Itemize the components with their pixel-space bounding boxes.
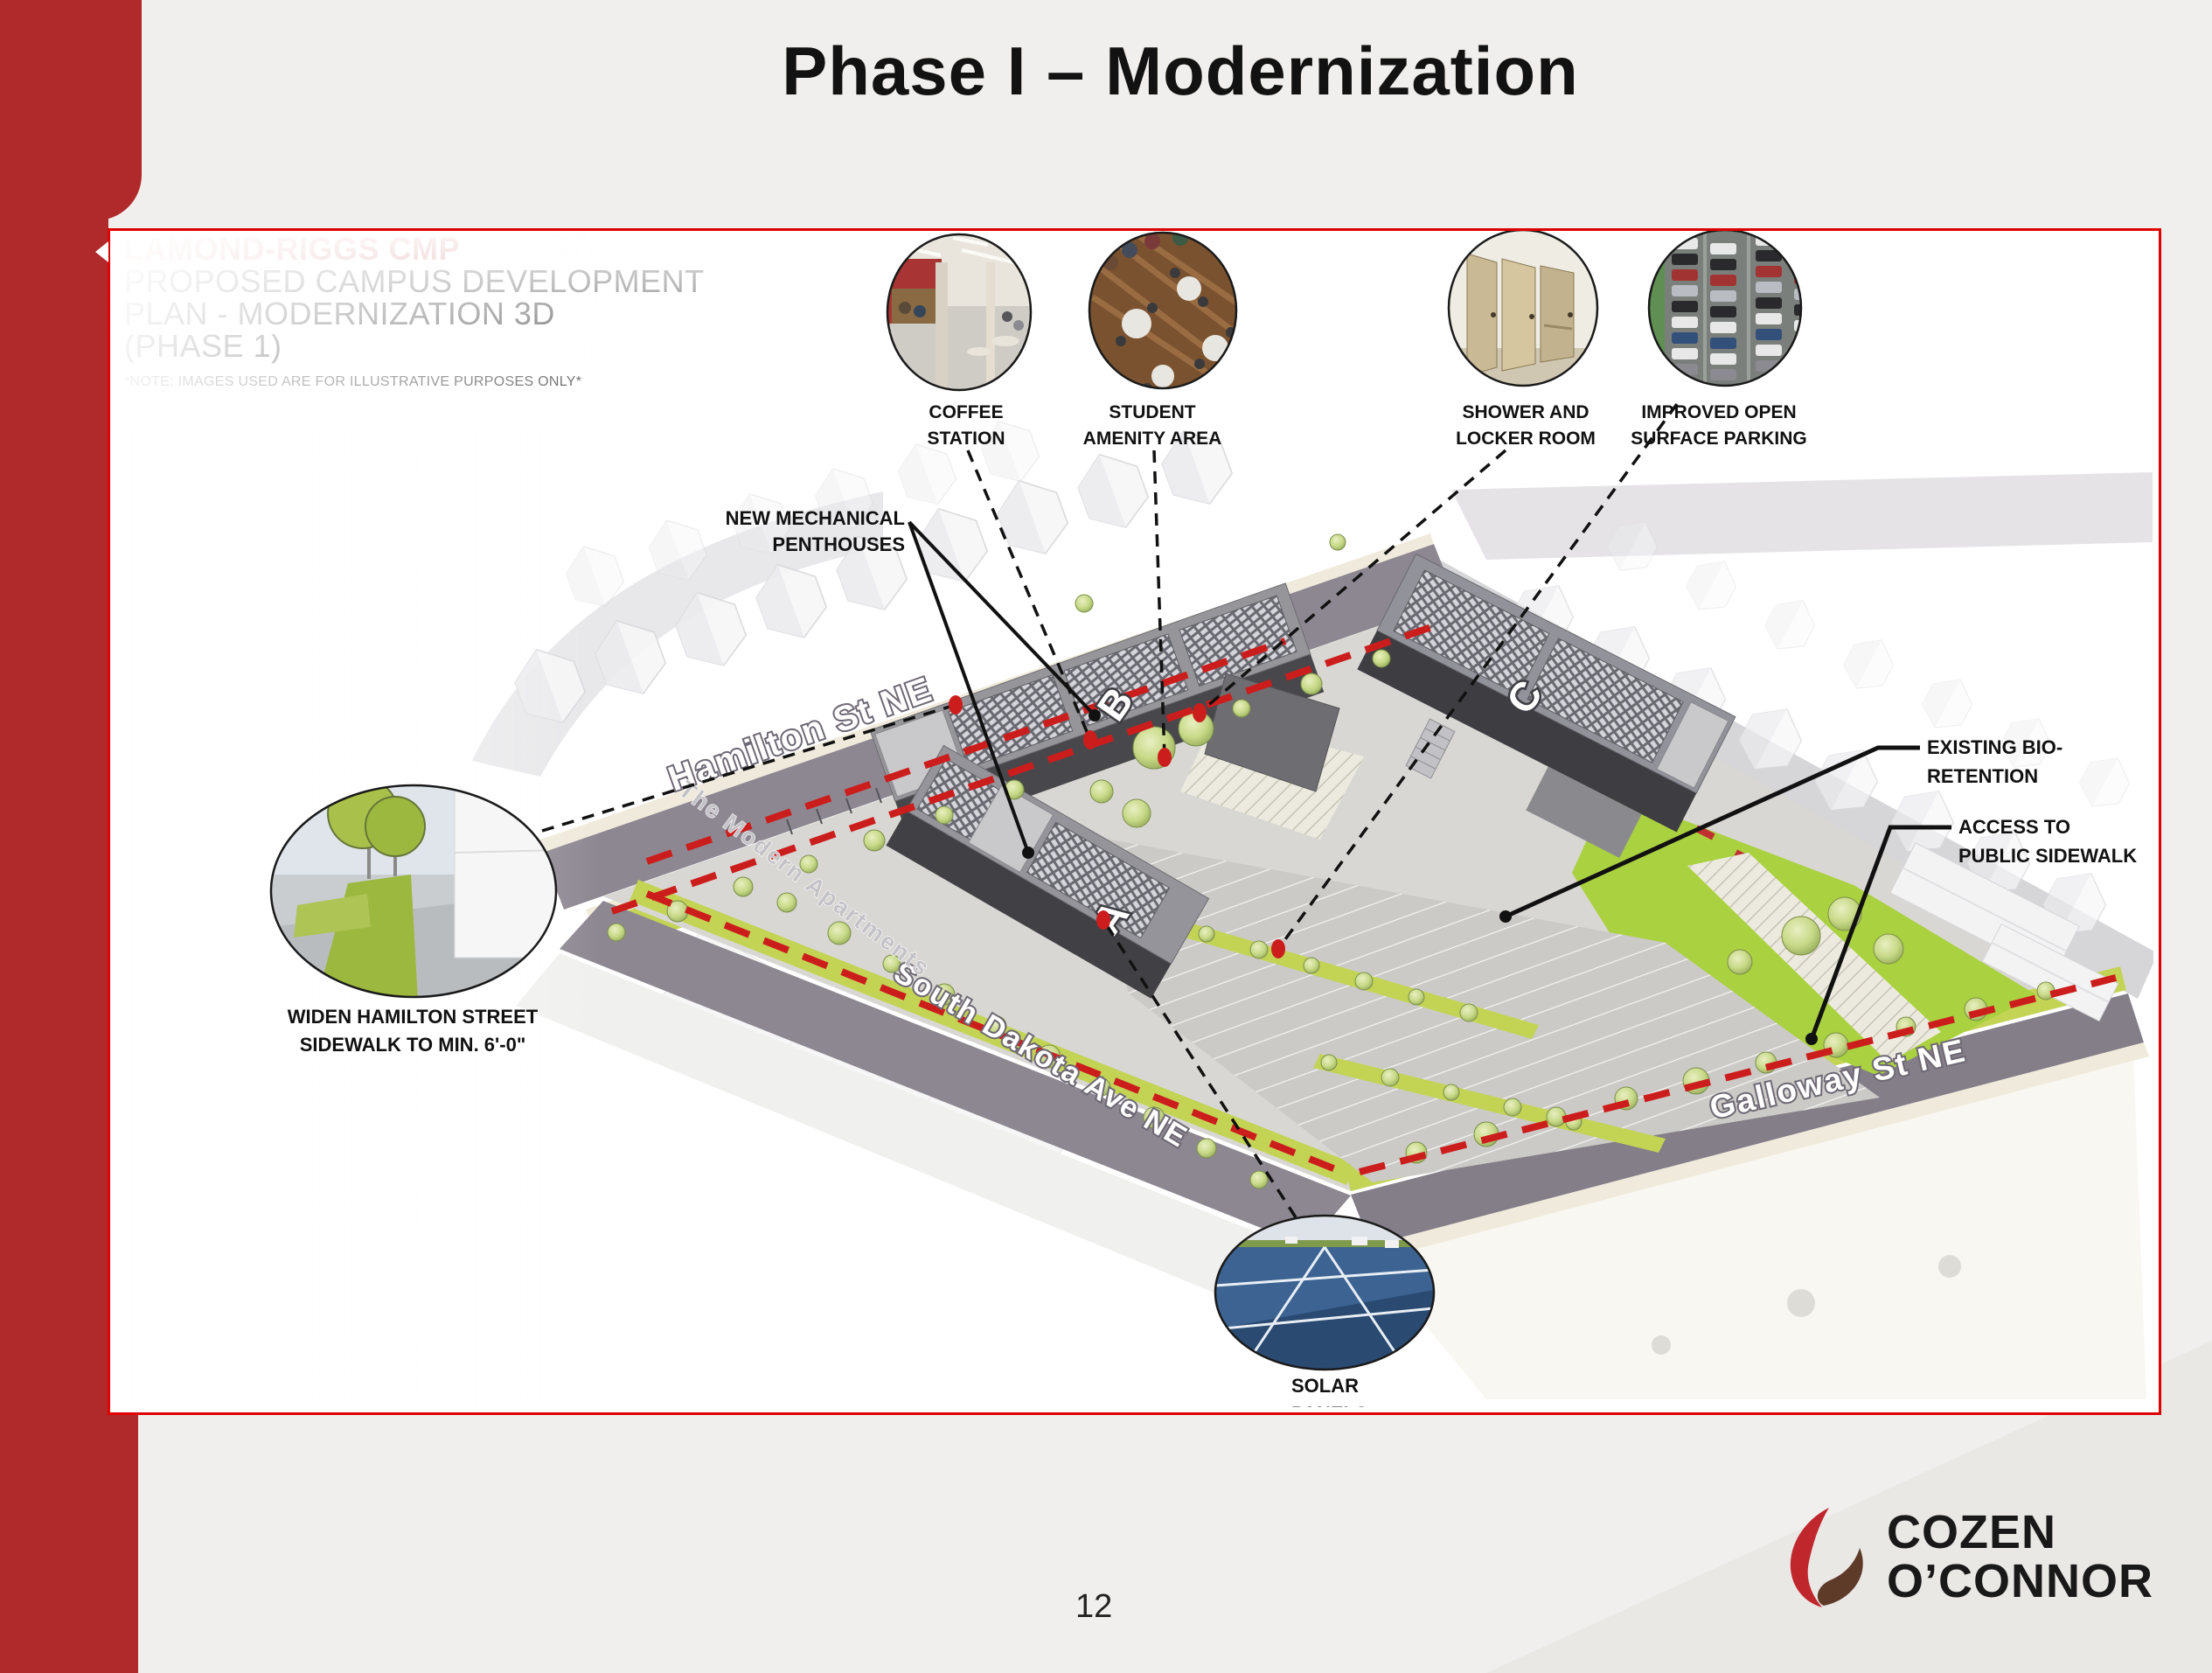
panel-left-arrow-icon bbox=[95, 241, 108, 262]
callout-access-line1: ACCESS TO bbox=[1958, 816, 2070, 838]
callout-penthouses-line2: PENTHOUSES bbox=[772, 533, 905, 555]
svg-text:STUDENT: STUDENT bbox=[1109, 402, 1195, 422]
page-title: Phase I – Modernization bbox=[149, 31, 2212, 111]
svg-text:COFFEE: COFFEE bbox=[929, 402, 1003, 422]
svg-text:STATION: STATION bbox=[927, 429, 1005, 449]
svg-text:SHOWER AND: SHOWER AND bbox=[1462, 402, 1589, 422]
left-red-tab bbox=[0, 0, 142, 220]
svg-text:LOCKER ROOM: LOCKER ROOM bbox=[1456, 429, 1596, 449]
callout-bio-line1: EXISTING BIO- bbox=[1927, 736, 2062, 758]
shower-locker-photo: SHOWER AND LOCKER ROOM bbox=[1449, 231, 1597, 449]
slide: Phase I – Modernization LAMOND-RIGGS CMP… bbox=[0, 0, 2212, 1673]
callout-bio-line2: RETENTION bbox=[1927, 765, 2038, 787]
svg-text:WIDEN HAMILTON STREET: WIDEN HAMILTON STREET bbox=[288, 1006, 539, 1028]
plan-panel: LAMOND-RIGGS CMP PROPOSED CAMPUS DEVELOP… bbox=[108, 228, 2161, 1415]
svg-text:SIDEWALK TO MIN. 6'-0": SIDEWALK TO MIN. 6'-0" bbox=[300, 1034, 526, 1056]
widen-sidewalk-photo: WIDEN HAMILTON STREET SIDEWALK TO MIN. 6… bbox=[271, 778, 560, 1056]
left-red-bar-bottom bbox=[0, 1415, 138, 1673]
callout-penthouses-line1: NEW MECHANICAL bbox=[726, 507, 905, 529]
cozen-flame-icon bbox=[1782, 1506, 1875, 1613]
svg-text:IMPROVED OPEN: IMPROVED OPEN bbox=[1641, 402, 1796, 422]
svg-text:AMENITY AREA: AMENITY AREA bbox=[1083, 429, 1222, 449]
page-number: 12 bbox=[1075, 1588, 1112, 1626]
svg-text:SURFACE PARKING: SURFACE PARKING bbox=[1631, 429, 1806, 449]
logo-wordmark: COZEN O’CONNOR bbox=[1887, 1508, 2153, 1606]
logo-line1: COZEN bbox=[1887, 1508, 2153, 1557]
svg-text:PANELS: PANELS bbox=[1291, 1403, 1368, 1407]
svg-text:SOLAR: SOLAR bbox=[1291, 1375, 1359, 1397]
cozen-oconnor-logo: COZEN O’CONNOR bbox=[1782, 1506, 2153, 1613]
site-plan-figure: Hamilton St NE South Dakota Ave NE Gallo… bbox=[110, 231, 2153, 1407]
callout-access-line2: PUBLIC SIDEWALK bbox=[1958, 845, 2137, 867]
logo-line2: O’CONNOR bbox=[1887, 1557, 2153, 1606]
solar-panels-photo: SOLAR PANELS bbox=[1215, 1216, 1434, 1407]
